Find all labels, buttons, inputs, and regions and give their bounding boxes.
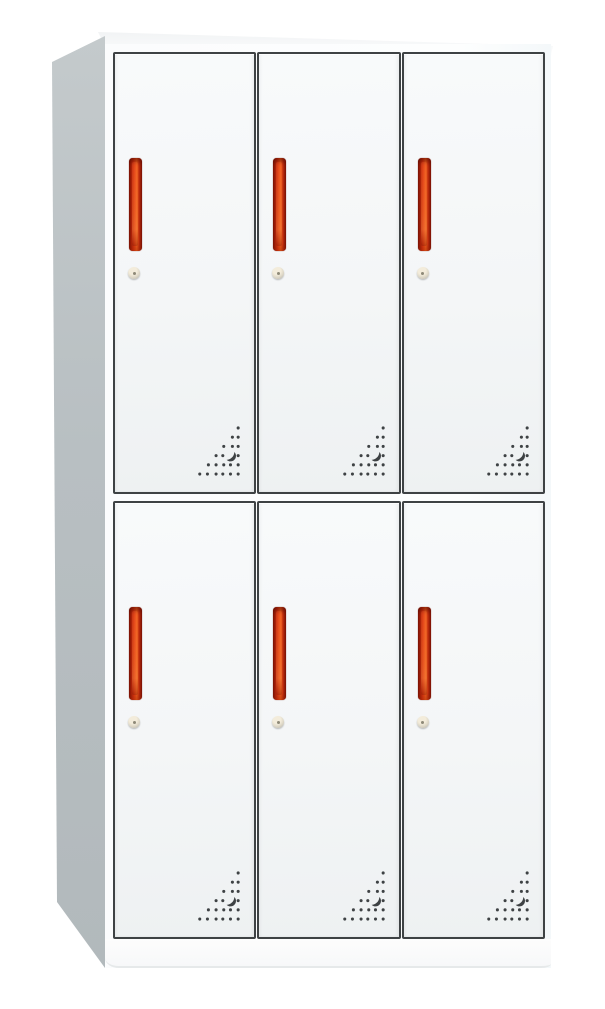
- vent-holes-icon: [339, 423, 387, 479]
- locker-door-r2-c3: [402, 501, 545, 939]
- door-handle-icon: [418, 607, 431, 700]
- door-handle-icon: [129, 607, 142, 700]
- door-handle-icon: [418, 158, 431, 251]
- vent-holes-icon: [194, 423, 242, 479]
- door-handle-icon: [129, 158, 142, 251]
- locker-door-r2-c1: [113, 501, 256, 939]
- locker-door-r1-c3: [402, 52, 545, 494]
- vent-holes-icon: [194, 868, 242, 924]
- locker-door-r1-c2: [257, 52, 400, 494]
- keyhole-lock-icon: [272, 267, 284, 279]
- cabinet-base: [105, 939, 551, 968]
- vent-holes-icon: [483, 423, 531, 479]
- locker-door-r1-c1: [113, 52, 256, 494]
- locker-door-r2-c2: [257, 501, 400, 939]
- door-handle-icon: [273, 607, 286, 700]
- product-image: [0, 0, 605, 1009]
- locker-cabinet: [0, 0, 605, 1009]
- keyhole-lock-icon: [272, 716, 284, 728]
- door-handle-icon: [273, 158, 286, 251]
- cabinet-front: [105, 44, 551, 968]
- vent-holes-icon: [339, 868, 387, 924]
- keyhole-lock-icon: [128, 716, 140, 728]
- keyhole-lock-icon: [128, 267, 140, 279]
- door-grid: [113, 52, 545, 939]
- cabinet-side-panel: [52, 28, 105, 973]
- vent-holes-icon: [483, 868, 531, 924]
- keyhole-lock-icon: [417, 716, 429, 728]
- keyhole-lock-icon: [417, 267, 429, 279]
